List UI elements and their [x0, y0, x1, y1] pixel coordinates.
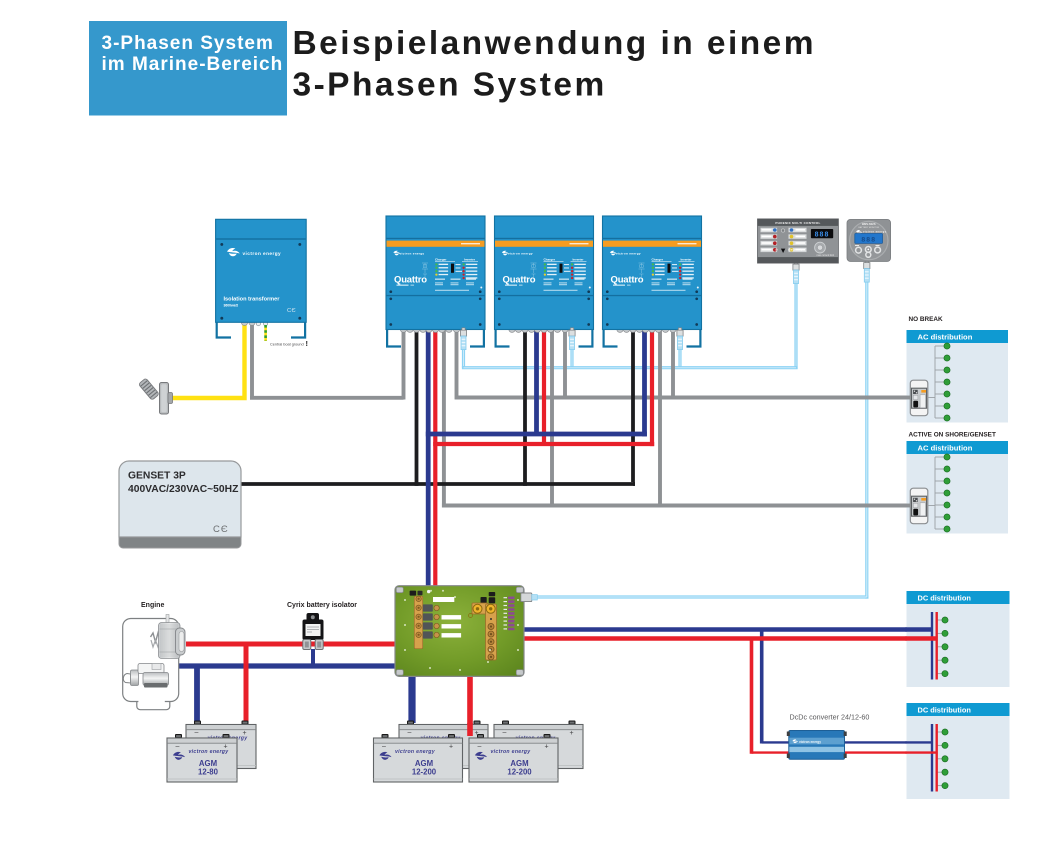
svg-text:Engine: Engine — [141, 602, 164, 609]
svg-text:DcDc converter 24/12-60: DcDc converter 24/12-60 — [790, 713, 870, 722]
svg-text:400VAC/230VAC~50HZ: 400VAC/230VAC~50HZ — [128, 484, 238, 495]
svg-text:victron energy: victron energy — [863, 229, 887, 233]
svg-text:Isolation transformer: Isolation transformer — [224, 296, 281, 302]
svg-text:charger only: charger only — [788, 248, 803, 252]
svg-text:3-Phasen System: 3-Phasen System — [293, 66, 607, 103]
svg-text:ACTIVE ON SHORE/GENSET: ACTIVE ON SHORE/GENSET — [909, 432, 996, 439]
svg-text:GENSET 3P: GENSET 3P — [128, 471, 186, 482]
svg-text:CЄ: CЄ — [213, 524, 229, 535]
svg-text:BATTERY MONITOR: BATTERY MONITOR — [858, 226, 879, 229]
svg-text:BMV-602S: BMV-602S — [862, 222, 876, 226]
svg-text:NO BREAK: NO BREAK — [909, 316, 943, 323]
svg-text:!: ! — [306, 339, 309, 348]
svg-text:PHOENIX MULTI CONTROL: PHOENIX MULTI CONTROL — [775, 221, 820, 225]
svg-text:888: 888 — [861, 237, 876, 244]
svg-text:3-Phasen System: 3-Phasen System — [102, 33, 274, 54]
svg-text:victron energy: victron energy — [243, 251, 282, 256]
svg-text:Beispielanwendung in einem: Beispielanwendung in einem — [293, 25, 816, 62]
svg-text:CЄ: CЄ — [287, 308, 296, 314]
svg-text:im Marine-Bereich: im Marine-Bereich — [102, 54, 284, 75]
svg-text:Central boat ground: Central boat ground — [270, 343, 304, 347]
svg-text:3600watt: 3600watt — [224, 304, 239, 308]
svg-text:max current limit: max current limit — [816, 254, 834, 257]
svg-text:888: 888 — [815, 232, 830, 239]
svg-text:victron energy: victron energy — [799, 740, 821, 744]
svg-text:Cyrix battery isolator: Cyrix battery isolator — [287, 602, 357, 609]
